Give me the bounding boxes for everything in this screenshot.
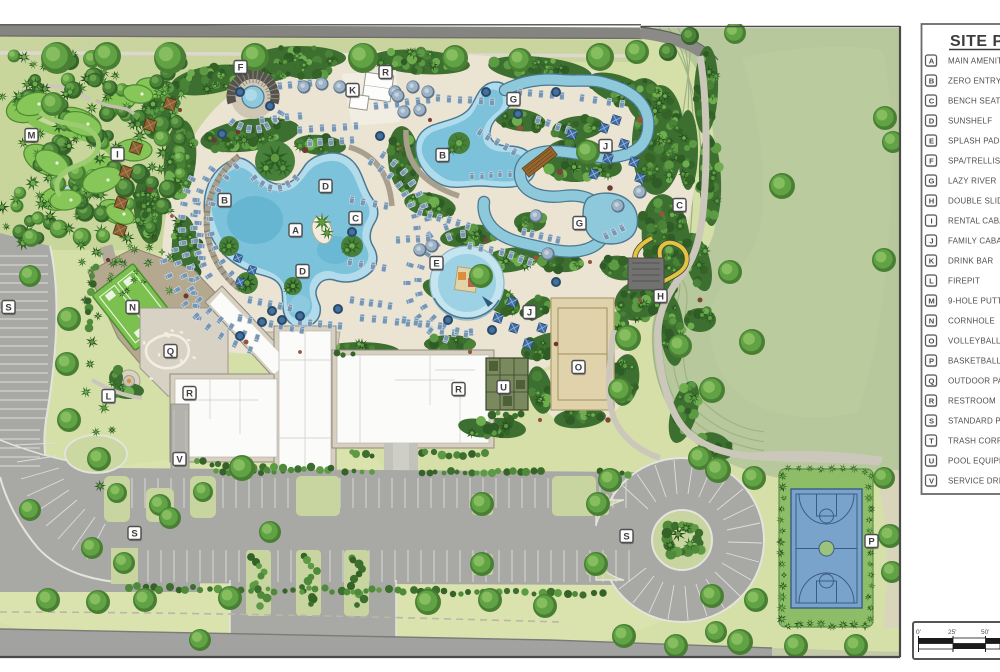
svg-text:S: S bbox=[5, 302, 11, 313]
svg-text:0': 0' bbox=[916, 629, 921, 636]
svg-text:C: C bbox=[352, 213, 359, 224]
svg-text:ZERO ENTRY: ZERO ENTRY bbox=[948, 76, 1000, 85]
svg-text:P: P bbox=[868, 536, 875, 547]
svg-text:S: S bbox=[929, 416, 934, 425]
svg-text:N: N bbox=[129, 302, 136, 313]
svg-text:DRINK BAR: DRINK BAR bbox=[948, 256, 993, 265]
svg-text:V: V bbox=[176, 454, 183, 465]
svg-text:C: C bbox=[929, 96, 935, 105]
svg-text:L: L bbox=[929, 276, 934, 285]
svg-text:K: K bbox=[349, 85, 356, 96]
svg-text:P: P bbox=[929, 356, 934, 365]
svg-text:G: G bbox=[929, 176, 935, 185]
svg-text:FIREPIT: FIREPIT bbox=[948, 276, 980, 285]
svg-text:SITE P: SITE P bbox=[950, 33, 1000, 50]
svg-text:U: U bbox=[929, 456, 935, 465]
svg-text:E: E bbox=[929, 136, 934, 145]
svg-text:J: J bbox=[603, 141, 608, 152]
svg-text:S: S bbox=[623, 531, 629, 542]
svg-text:A: A bbox=[292, 225, 299, 236]
svg-text:N: N bbox=[929, 316, 934, 325]
svg-text:FAMILY CABANAS: FAMILY CABANAS bbox=[948, 236, 1000, 245]
svg-text:MAIN AMENITY POOL: MAIN AMENITY POOL bbox=[948, 56, 1000, 65]
svg-text:B: B bbox=[929, 76, 935, 85]
svg-text:SUNSHELF: SUNSHELF bbox=[948, 116, 992, 125]
svg-text:M: M bbox=[28, 130, 36, 141]
svg-text:U: U bbox=[500, 382, 507, 393]
svg-text:O: O bbox=[575, 362, 582, 373]
svg-text:C: C bbox=[676, 200, 683, 211]
svg-text:CORNHOLE: CORNHOLE bbox=[948, 316, 995, 325]
svg-text:A: A bbox=[929, 56, 935, 65]
svg-text:H: H bbox=[657, 291, 664, 302]
svg-text:SPLASH PAD: SPLASH PAD bbox=[948, 136, 1000, 145]
svg-text:STANDARD PARKING: STANDARD PARKING bbox=[948, 416, 1000, 425]
svg-text:Q: Q bbox=[929, 376, 935, 385]
svg-text:J: J bbox=[929, 236, 933, 245]
svg-text:G: G bbox=[510, 94, 517, 105]
svg-text:D: D bbox=[299, 266, 306, 277]
svg-text:E: E bbox=[433, 258, 439, 269]
svg-text:B: B bbox=[221, 195, 228, 206]
svg-text:L: L bbox=[106, 391, 112, 402]
svg-text:BASKETBALL: BASKETBALL bbox=[948, 356, 1000, 365]
svg-text:I: I bbox=[116, 149, 119, 160]
svg-text:I: I bbox=[930, 216, 932, 225]
svg-text:RESTROOM: RESTROOM bbox=[948, 396, 996, 405]
svg-text:SERVICE DRIVE: SERVICE DRIVE bbox=[948, 476, 1000, 485]
svg-text:RENTAL CABANAS: RENTAL CABANAS bbox=[948, 216, 1000, 225]
svg-text:25': 25' bbox=[948, 629, 956, 636]
svg-text:TRASH CORRAL: TRASH CORRAL bbox=[948, 436, 1000, 445]
svg-text:SPA/TRELLIS: SPA/TRELLIS bbox=[948, 156, 1000, 165]
svg-text:G: G bbox=[576, 218, 583, 229]
svg-text:POOL EQUIPMENT: POOL EQUIPMENT bbox=[948, 456, 1000, 465]
svg-text:BENCH SEATING: BENCH SEATING bbox=[948, 96, 1000, 105]
svg-text:9-HOLE PUTTING: 9-HOLE PUTTING bbox=[948, 296, 1000, 305]
svg-text:B: B bbox=[439, 150, 446, 161]
svg-text:LAZY RIVER: LAZY RIVER bbox=[948, 176, 997, 185]
svg-text:J: J bbox=[527, 307, 532, 318]
svg-text:R: R bbox=[929, 396, 935, 405]
svg-text:R: R bbox=[186, 388, 193, 399]
svg-text:H: H bbox=[929, 196, 934, 205]
svg-text:D: D bbox=[929, 116, 935, 125]
svg-text:DOUBLE SLIDE: DOUBLE SLIDE bbox=[948, 196, 1000, 205]
svg-text:S: S bbox=[131, 528, 137, 539]
svg-text:VOLLEYBALL: VOLLEYBALL bbox=[948, 336, 1000, 345]
svg-text:D: D bbox=[322, 181, 329, 192]
svg-text:OUTDOOR PAVILION: OUTDOOR PAVILION bbox=[948, 376, 1000, 385]
svg-text:F: F bbox=[238, 62, 244, 73]
svg-text:F: F bbox=[929, 156, 934, 165]
svg-text:O: O bbox=[929, 336, 935, 345]
svg-text:M: M bbox=[928, 296, 934, 305]
svg-text:T: T bbox=[929, 436, 934, 445]
svg-text:K: K bbox=[929, 256, 935, 265]
svg-text:R: R bbox=[382, 67, 389, 78]
svg-text:R: R bbox=[455, 384, 462, 395]
svg-text:Q: Q bbox=[167, 346, 174, 357]
svg-text:50': 50' bbox=[981, 629, 989, 636]
